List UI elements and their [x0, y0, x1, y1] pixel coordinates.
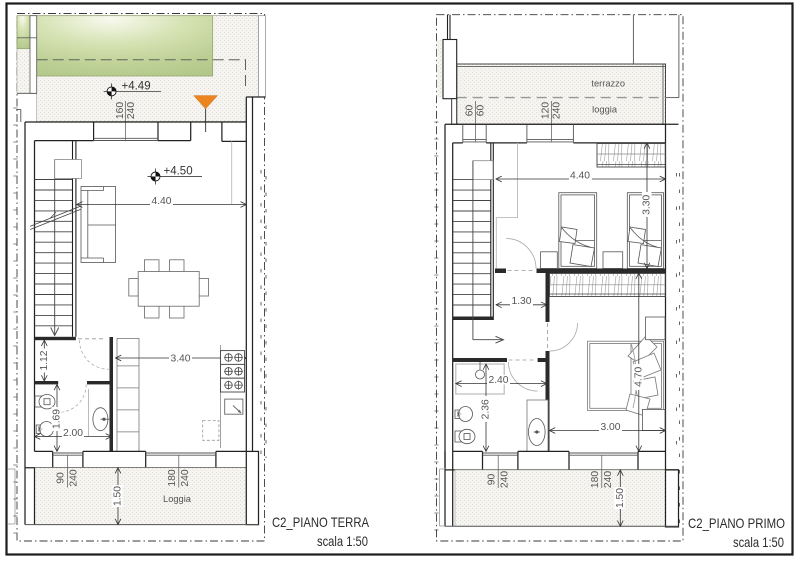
svg-text:C2_PIANO PRIMO: C2_PIANO PRIMO — [688, 515, 785, 531]
svg-text:4.70: 4.70 — [633, 367, 644, 387]
svg-text:90: 90 — [486, 474, 497, 486]
svg-text:90: 90 — [56, 472, 67, 484]
svg-text:4.40: 4.40 — [151, 196, 171, 207]
svg-text:240: 240 — [499, 471, 510, 488]
svg-text:240: 240 — [552, 102, 563, 119]
svg-text:scala 1:50: scala 1:50 — [733, 534, 784, 550]
svg-text:1.69: 1.69 — [52, 409, 63, 429]
svg-text:240: 240 — [69, 469, 80, 486]
svg-text:120: 120 — [541, 102, 552, 119]
svg-text:3.00: 3.00 — [600, 422, 620, 433]
svg-text:180: 180 — [590, 471, 601, 488]
svg-text:60: 60 — [465, 105, 476, 117]
svg-text:60: 60 — [476, 105, 487, 117]
svg-text:3.30: 3.30 — [642, 195, 653, 215]
svg-text:Loggia: Loggia — [163, 494, 192, 504]
svg-text:2.36: 2.36 — [481, 399, 492, 419]
svg-text:1.12: 1.12 — [39, 350, 50, 370]
svg-text:scala 1:50: scala 1:50 — [317, 533, 368, 549]
svg-text:3.40: 3.40 — [170, 354, 190, 365]
svg-text:1.50: 1.50 — [615, 488, 626, 508]
svg-text:240: 240 — [126, 102, 137, 119]
svg-text:C2_PIANO TERRA: C2_PIANO TERRA — [272, 514, 370, 530]
svg-text:+4.49: +4.49 — [122, 81, 151, 93]
svg-text:240: 240 — [603, 471, 614, 488]
svg-text:loggia: loggia — [592, 105, 618, 115]
svg-text:2.00: 2.00 — [63, 428, 83, 439]
svg-text:2.40: 2.40 — [488, 375, 508, 386]
svg-text:terrazzo: terrazzo — [591, 79, 625, 89]
svg-text:1.30: 1.30 — [511, 296, 531, 307]
svg-text:4.40: 4.40 — [570, 170, 590, 181]
svg-text:240: 240 — [180, 469, 191, 486]
svg-text:1.50: 1.50 — [113, 486, 124, 506]
svg-text:180: 180 — [167, 469, 178, 486]
svg-text:+4.50: +4.50 — [164, 166, 193, 178]
svg-text:160: 160 — [115, 102, 126, 119]
